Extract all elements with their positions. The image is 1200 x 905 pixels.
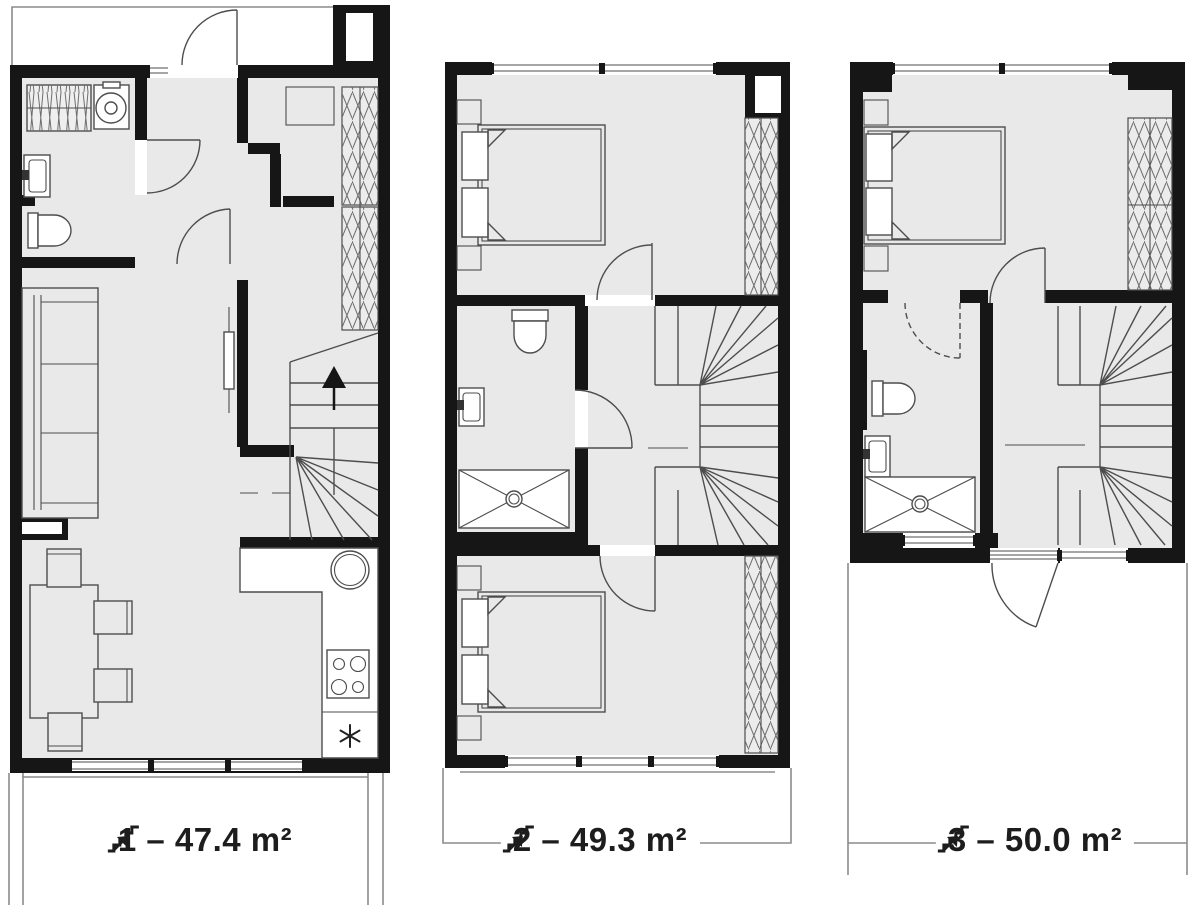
floor-plan-1-drawing	[9, 5, 390, 905]
sink-icon	[22, 155, 50, 197]
stairs-up-icon	[106, 821, 142, 853]
toilet-icon	[872, 381, 915, 416]
sofa-icon	[22, 288, 98, 518]
chair	[47, 549, 81, 587]
stove-icon	[327, 650, 369, 698]
bed-icon	[462, 592, 605, 712]
stairs-up-icon	[501, 821, 537, 853]
plan-label-text: 2 – 49.3 m²	[513, 821, 687, 859]
plan-label-3: 3 – 50.0 m²	[936, 821, 1134, 859]
sink-icon	[863, 436, 890, 477]
porch-outline	[12, 7, 333, 65]
chimney-shaft	[745, 62, 790, 120]
window	[890, 62, 1114, 75]
toilet-icon	[28, 213, 71, 248]
shelf-icon	[27, 85, 91, 131]
chair	[94, 601, 132, 634]
window	[1057, 548, 1131, 563]
wardrobe	[745, 556, 778, 753]
dining-table-icon	[30, 585, 98, 718]
plan-label-1: 1 – 47.4 m²	[106, 821, 304, 859]
entry-canopy	[333, 5, 390, 65]
terrace-door	[990, 548, 1058, 627]
floor-plan-2-drawing	[443, 62, 791, 843]
bed-icon	[462, 125, 605, 245]
wardrobe	[342, 87, 378, 330]
chair	[48, 713, 82, 751]
chair	[94, 669, 132, 702]
entrance-door	[150, 10, 238, 78]
plan-label-text: 3 – 50.0 m²	[948, 821, 1122, 859]
wardrobe	[745, 118, 778, 295]
floor-plan-canvas	[0, 0, 1200, 905]
shower-icon	[865, 477, 975, 532]
window	[489, 62, 718, 75]
window	[900, 533, 978, 548]
kitchen-sink-icon	[331, 551, 369, 589]
shower-icon	[459, 470, 569, 528]
toilet-icon	[512, 310, 548, 353]
floor-plan-3-drawing	[848, 62, 1187, 875]
interior-walls	[850, 75, 892, 92]
wardrobe	[1128, 118, 1172, 290]
plan-label-2: 2 – 49.3 m²	[501, 821, 699, 859]
plan-label-text: 1 – 47.4 m²	[118, 821, 292, 859]
bed-icon	[864, 127, 1005, 244]
sink-icon	[457, 388, 484, 426]
floor-plan-sheet: 1 – 47.4 m² 2 – 49.3 m² 3 – 50.0 m²	[0, 0, 1200, 905]
interior-walls	[1128, 75, 1172, 90]
washing-machine-icon	[94, 82, 129, 129]
stairs-up-icon	[936, 821, 972, 853]
